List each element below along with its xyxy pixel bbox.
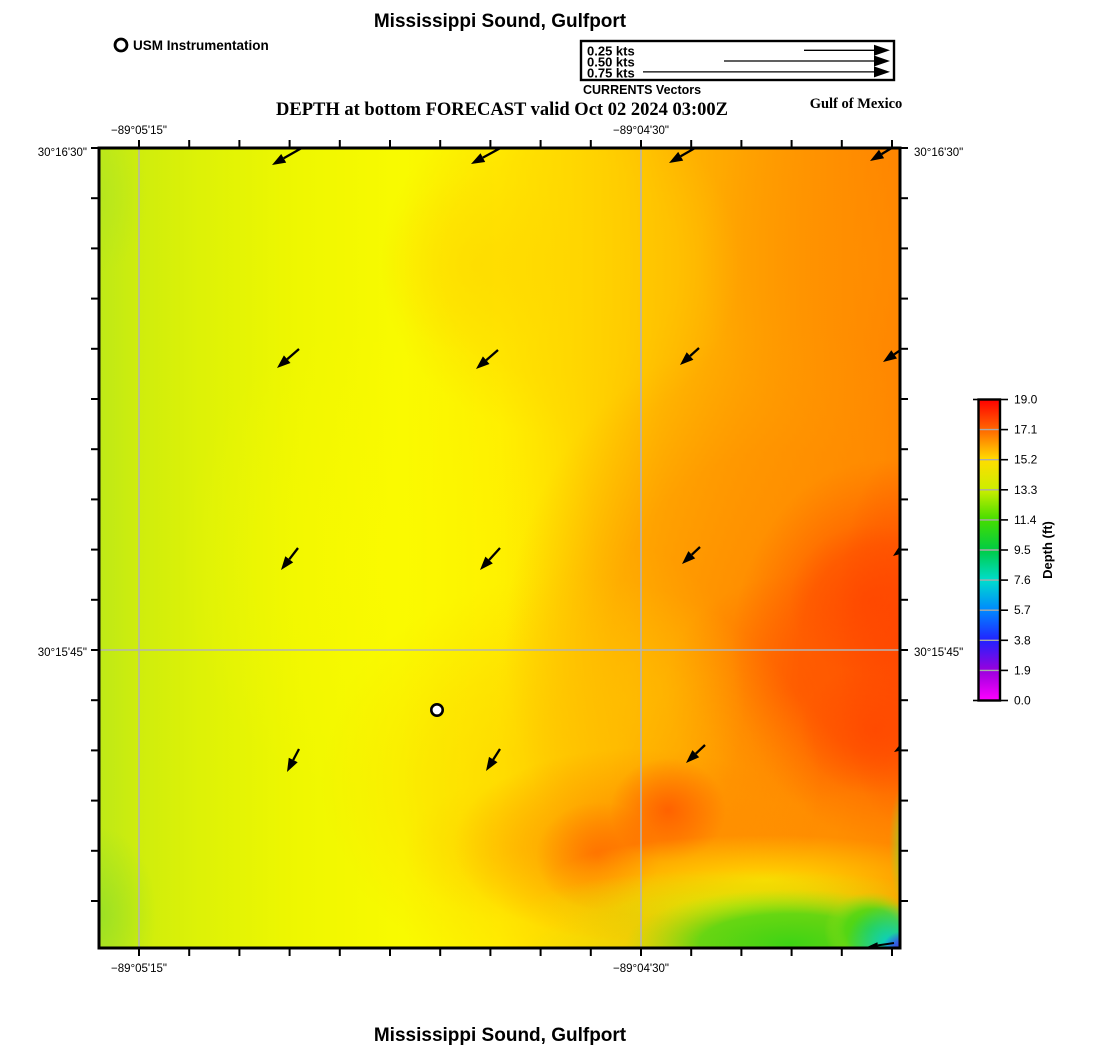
svg-text:15.2: 15.2 <box>1014 453 1038 467</box>
svg-text:−89°05'15": −89°05'15" <box>111 125 167 137</box>
svg-text:30°15'45": 30°15'45" <box>914 647 963 659</box>
svg-text:30°16'30": 30°16'30" <box>38 147 87 159</box>
svg-text:13.3: 13.3 <box>1014 483 1038 497</box>
svg-text:−89°04'30": −89°04'30" <box>613 963 669 975</box>
svg-text:CURRENTS Vectors: CURRENTS Vectors <box>583 83 701 97</box>
svg-text:−89°05'15": −89°05'15" <box>111 963 167 975</box>
svg-text:7.6: 7.6 <box>1014 573 1031 587</box>
svg-text:USM Instrumentation: USM Instrumentation <box>133 38 269 53</box>
svg-text:Depth (ft): Depth (ft) <box>1040 521 1055 579</box>
svg-text:17.1: 17.1 <box>1014 423 1038 437</box>
svg-text:3.8: 3.8 <box>1014 633 1031 647</box>
svg-text:0.0: 0.0 <box>1014 694 1031 708</box>
svg-text:30°16'30": 30°16'30" <box>914 147 963 159</box>
svg-text:30°15'45": 30°15'45" <box>38 647 87 659</box>
svg-text:Mississippi Sound, Gulfport: Mississippi Sound, Gulfport <box>374 1025 627 1046</box>
svg-text:9.5: 9.5 <box>1014 543 1031 557</box>
svg-text:0.75 kts: 0.75 kts <box>587 66 635 81</box>
svg-text:19.0: 19.0 <box>1014 393 1038 407</box>
svg-text:Gulf of Mexico: Gulf of Mexico <box>810 96 903 112</box>
svg-text:Mississippi Sound, Gulfport: Mississippi Sound, Gulfport <box>374 11 627 32</box>
svg-text:1.9: 1.9 <box>1014 663 1031 677</box>
svg-text:5.7: 5.7 <box>1014 603 1031 617</box>
svg-text:DEPTH at bottom FORECAST valid: DEPTH at bottom FORECAST valid Oct 02 20… <box>276 100 728 120</box>
svg-text:−89°04'30": −89°04'30" <box>613 125 669 137</box>
svg-text:11.4: 11.4 <box>1014 513 1037 527</box>
